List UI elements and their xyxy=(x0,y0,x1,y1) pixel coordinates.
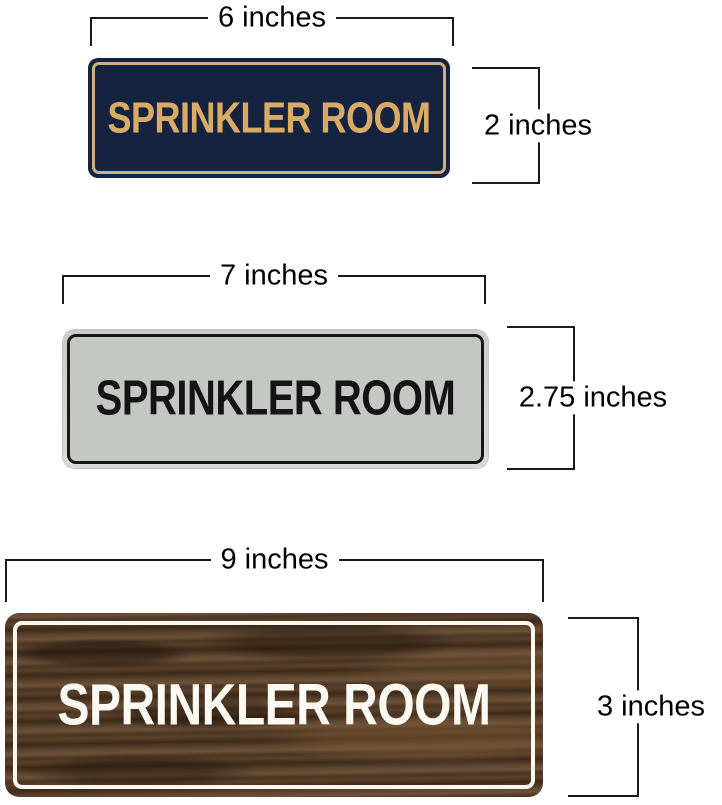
navy-sign-panel: SPRINKLER ROOM xyxy=(88,58,450,178)
height-dimension-bracket-wood: 3 inches xyxy=(568,617,639,797)
silver-sign-panel: SPRINKLER ROOM xyxy=(63,330,488,468)
wood-sign-panel: SPRINKLER ROOM xyxy=(5,613,543,797)
height-dimension-label-navy: 2 inches xyxy=(474,109,602,142)
width-dimension-label-navy: 6 inches xyxy=(208,1,336,34)
width-dimension-label-wood: 9 inches xyxy=(210,543,338,576)
sign-size-diagram: 6 inches SPRINKLER ROOM 2 inches 7 inche… xyxy=(0,0,722,805)
wood-sign-text: SPRINKLER ROOM xyxy=(57,671,490,738)
width-dimension-bracket-wood: 9 inches xyxy=(5,559,544,602)
height-dimension-bracket-navy: 2 inches xyxy=(472,67,540,184)
navy-sign-text: SPRINKLER ROOM xyxy=(107,92,430,143)
height-dimension-label-silver: 2.75 inches xyxy=(509,381,677,414)
width-dimension-label-silver: 7 inches xyxy=(210,259,338,292)
width-dimension-bracket-silver: 7 inches xyxy=(62,275,486,304)
height-dimension-label-wood: 3 inches xyxy=(587,690,715,723)
silver-sign-inner-border: SPRINKLER ROOM xyxy=(67,334,484,464)
silver-sign-text: SPRINKLER ROOM xyxy=(96,372,456,427)
navy-sign-inner-border: SPRINKLER ROOM xyxy=(92,62,446,174)
wood-sign-inner-border: SPRINKLER ROOM xyxy=(13,621,535,789)
width-dimension-bracket-navy: 6 inches xyxy=(90,17,454,46)
height-dimension-bracket-silver: 2.75 inches xyxy=(507,326,575,470)
